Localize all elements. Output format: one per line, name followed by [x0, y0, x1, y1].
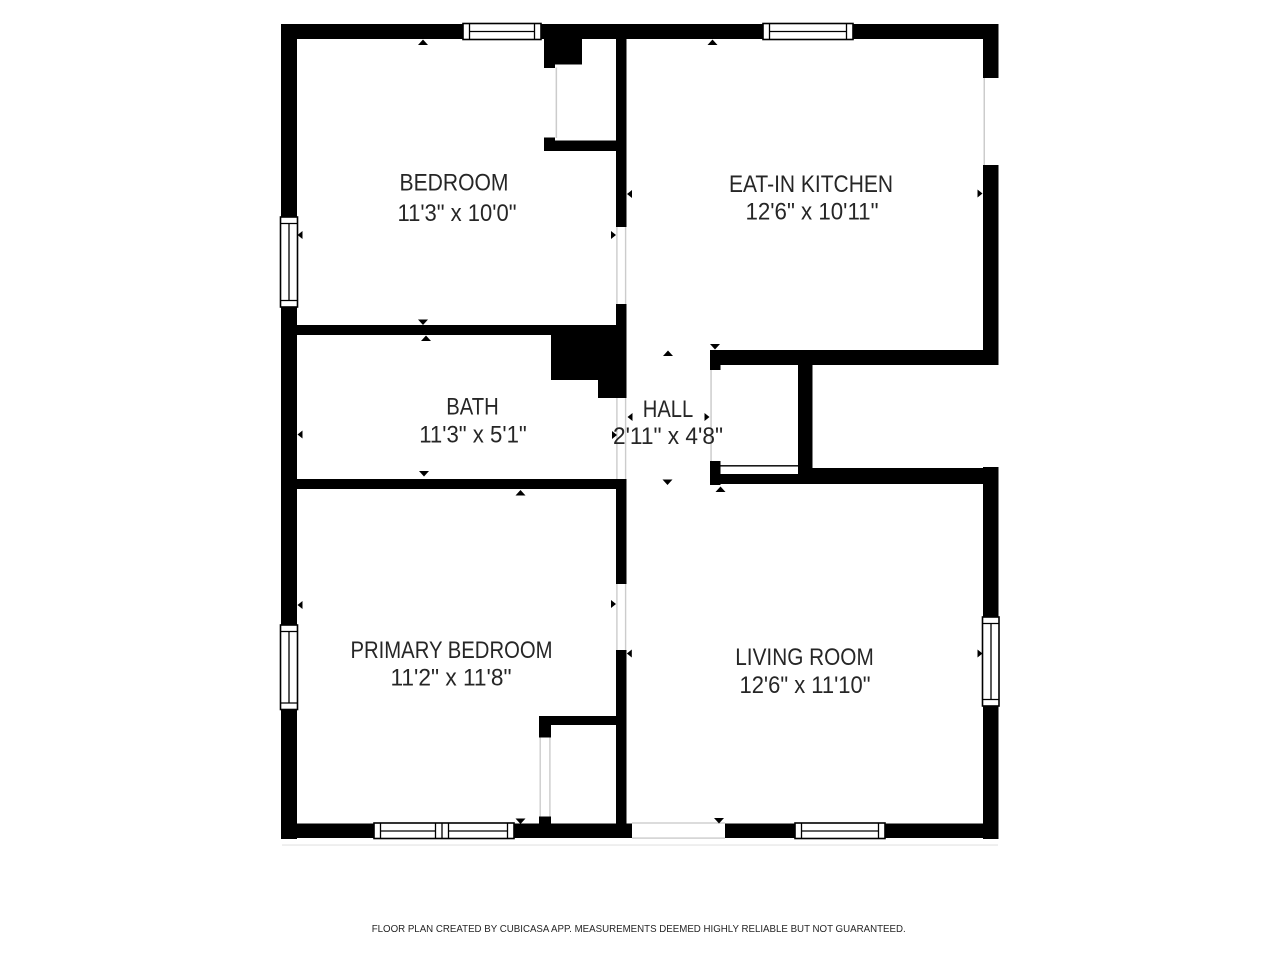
svg-text:2'11" x 4'8": 2'11" x 4'8"	[613, 423, 723, 450]
svg-text:FLOOR PLAN CREATED BY CUBICASA: FLOOR PLAN CREATED BY CUBICASA APP. MEAS…	[372, 923, 906, 935]
svg-text:11'3" x 5'1": 11'3" x 5'1"	[419, 422, 527, 449]
svg-text:BATH: BATH	[446, 393, 499, 420]
svg-text:11'3" x 10'0": 11'3" x 10'0"	[398, 200, 517, 227]
svg-text:HALL: HALL	[643, 396, 694, 423]
svg-text:12'6" x 11'10": 12'6" x 11'10"	[740, 672, 871, 699]
svg-text:LIVING ROOM: LIVING ROOM	[735, 644, 874, 671]
svg-text:BEDROOM: BEDROOM	[400, 170, 509, 197]
svg-text:11'2" x 11'8": 11'2" x 11'8"	[391, 665, 512, 692]
svg-text:PRIMARY BEDROOM: PRIMARY BEDROOM	[351, 637, 553, 664]
svg-text:EAT-IN KITCHEN: EAT-IN KITCHEN	[729, 171, 893, 198]
svg-text:12'6" x 10'11": 12'6" x 10'11"	[746, 199, 879, 226]
